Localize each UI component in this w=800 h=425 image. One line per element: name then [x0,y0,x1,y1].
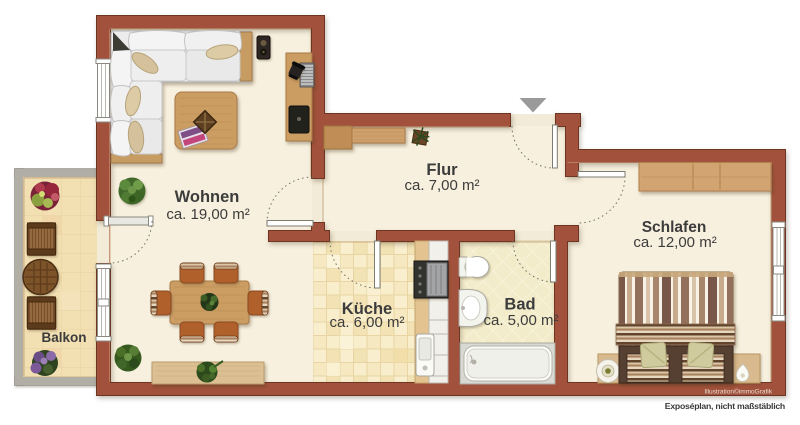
svg-text:ca. 6,00 m²: ca. 6,00 m² [329,314,404,331]
svg-text:ca. 19,00 m²: ca. 19,00 m² [166,206,249,223]
svg-text:ca. 12,00 m²: ca. 12,00 m² [633,234,716,251]
svg-text:Exposéplan, nicht maßstäblich: Exposéplan, nicht maßstäblich [665,401,785,411]
svg-text:Balkon: Balkon [41,330,86,345]
svg-text:Wohnen: Wohnen [175,188,240,206]
svg-text:ca. 7,00 m²: ca. 7,00 m² [404,177,479,194]
svg-text:Illustration©immoGrafik: Illustration©immoGrafik [704,388,772,396]
svg-text:Bad: Bad [504,296,535,314]
svg-text:ca. 5,00 m²: ca. 5,00 m² [483,312,558,329]
